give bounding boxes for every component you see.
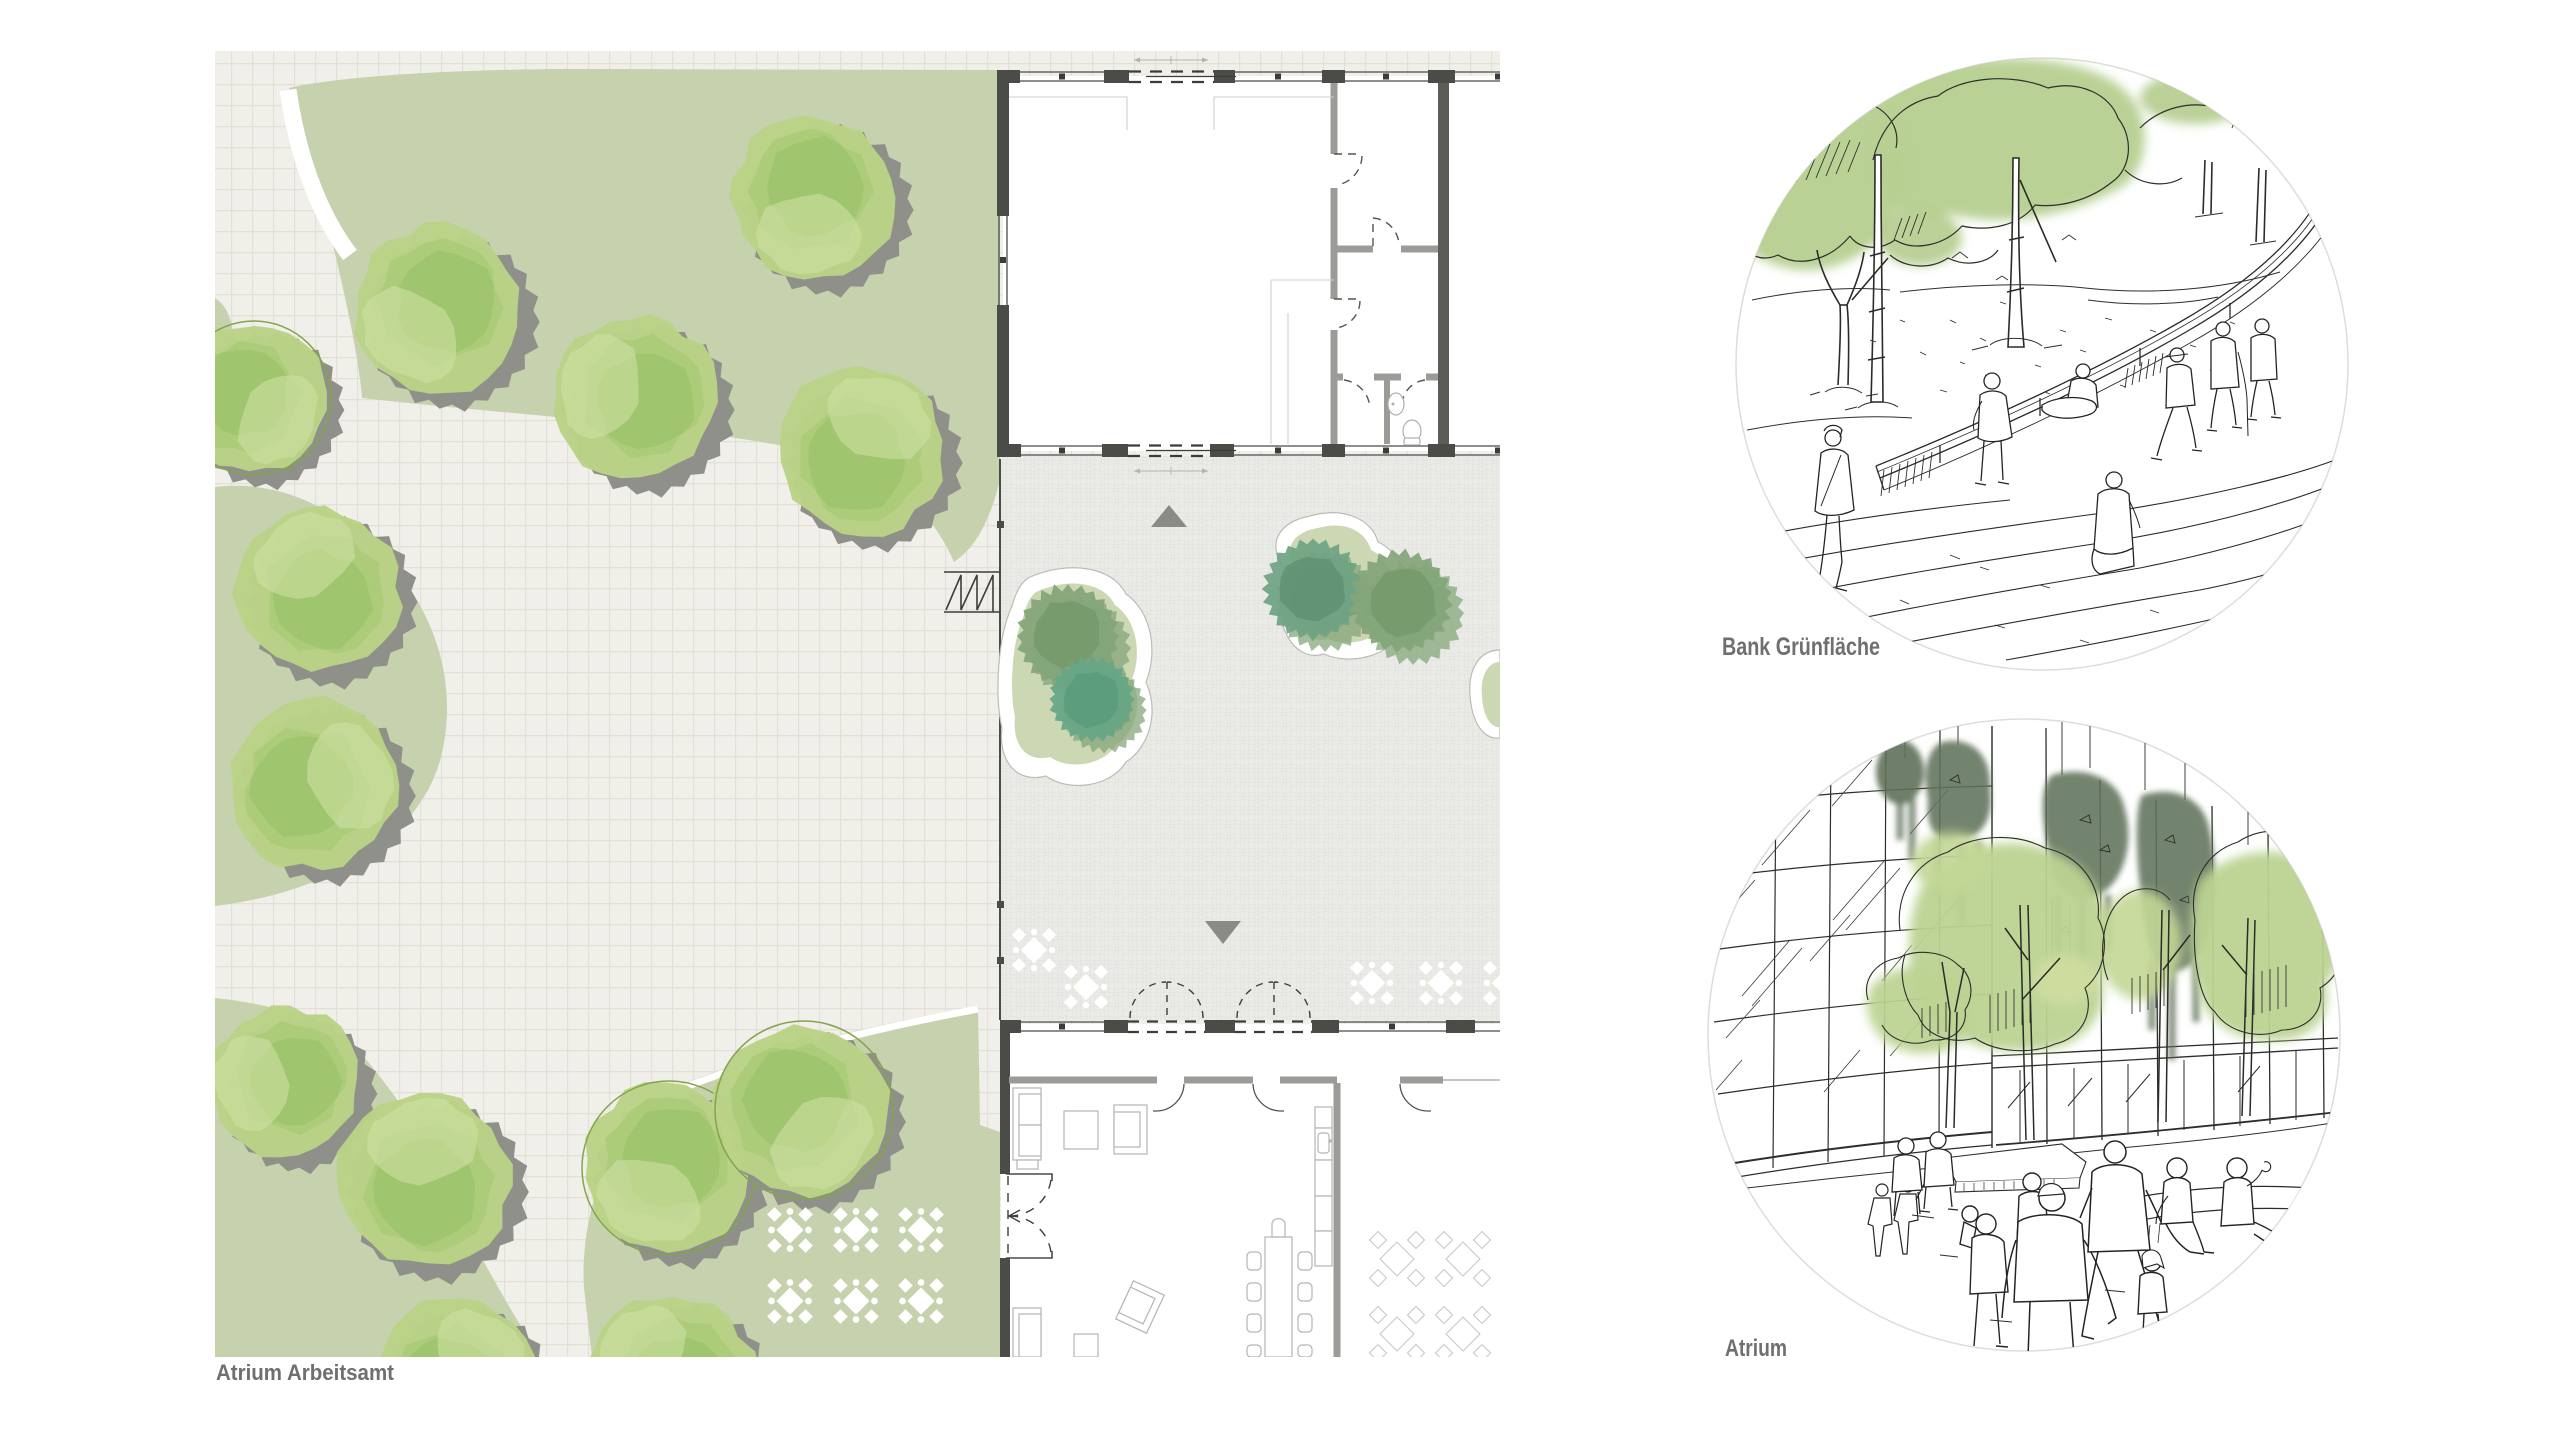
svg-text:Bank Grünfläche: Bank Grünfläche — [1722, 633, 1880, 661]
svg-text:Atrium Arbeitsamt: Atrium Arbeitsamt — [216, 1360, 395, 1385]
svg-text:Atrium: Atrium — [1725, 1335, 1787, 1362]
